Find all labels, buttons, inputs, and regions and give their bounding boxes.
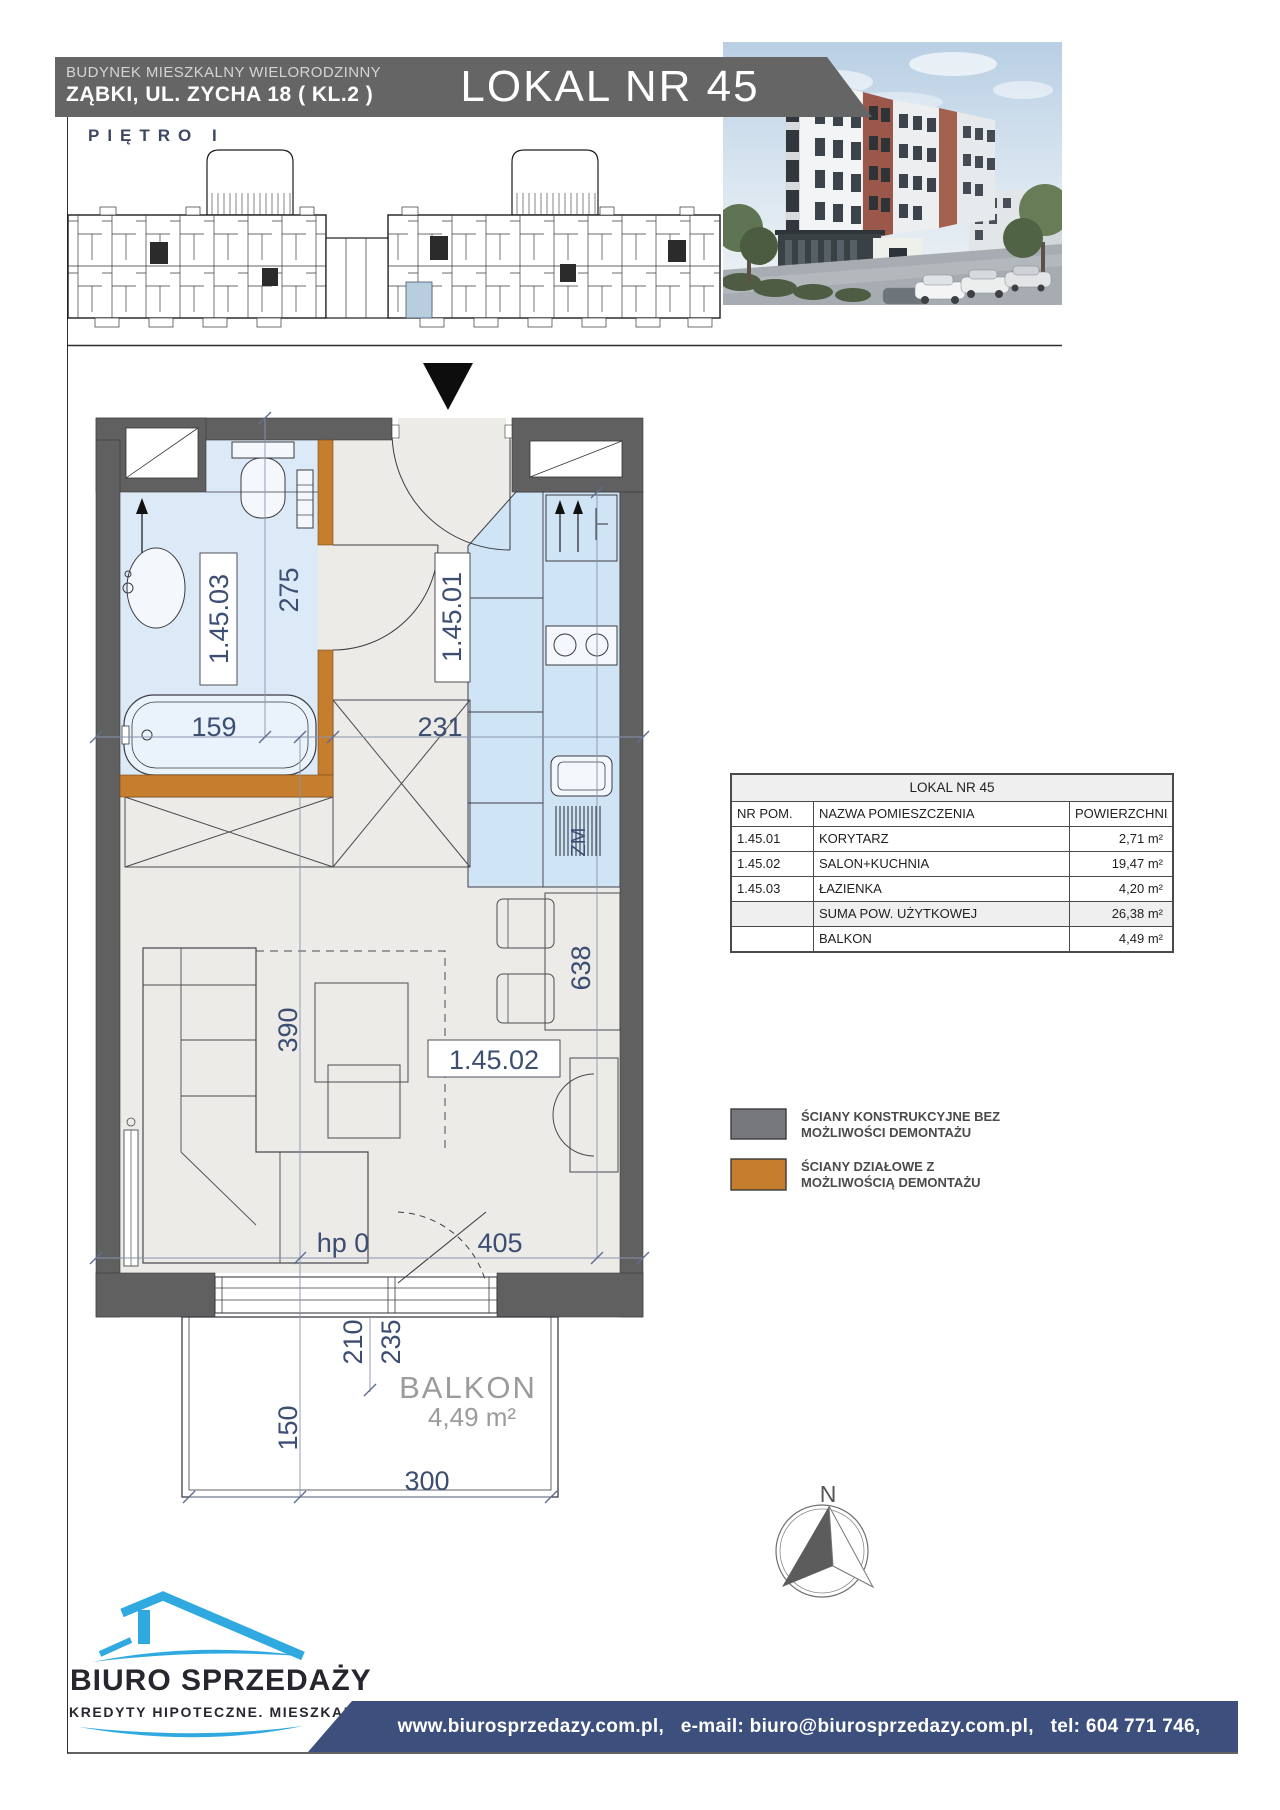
building-connector — [326, 238, 388, 318]
row-name: SUMA POW. UŻYTKOWEJ — [814, 902, 1070, 926]
room-label-bath: 1.45.03 — [204, 574, 234, 664]
col-area: POWIERZCHNIA — [1070, 802, 1168, 826]
partition-wall-swatch — [730, 1158, 787, 1191]
brochure-page: BUDYNEK MIESZKALNY WIELORODZINNY ZĄBKI, … — [0, 0, 1280, 1810]
washbasin — [127, 548, 185, 628]
dim-apartment-depth: 638 — [566, 945, 596, 990]
logo-title: BIURO SPRZEDAŻY — [70, 1664, 372, 1698]
logo-subtitle: KREDYTY HIPOTECZNE. MIESZKANIA — [69, 1704, 373, 1720]
legend-structural-walls: ŚCIANY KONSTRUKCYJNE BEZ MOŻLIWOŚCI DEMO… — [730, 1108, 1000, 1141]
room-label-hall: 1.45.01 — [437, 572, 467, 662]
row-nr: 1.45.01 — [732, 827, 814, 851]
footer-bar: www.biurosprzedazy.com.pl, e-mail: biuro… — [308, 1701, 1238, 1752]
row-area: 2,71 m² — [1070, 827, 1168, 851]
dim-balcony-width: 300 — [404, 1466, 449, 1496]
row-name: KORYTARZ — [814, 827, 1070, 851]
row-nr: 1.45.02 — [732, 852, 814, 876]
structural-wall-swatch — [730, 1108, 787, 1140]
toilet-tank — [232, 442, 294, 458]
dishwasher-label: ZM — [568, 828, 590, 857]
table-row: 1.45.01 KORYTARZ 2,71 m² — [732, 827, 1172, 852]
col-nr: NR POM. — [732, 802, 814, 826]
toilet — [241, 458, 285, 518]
floors — [120, 418, 620, 1273]
dim-sill-height: hp 0 — [317, 1228, 370, 1258]
stove — [546, 626, 617, 665]
stair-bay — [512, 150, 598, 215]
row-nr — [732, 927, 814, 951]
table-row: 1.45.03 ŁAZIENKA 4,20 m² — [732, 877, 1172, 902]
dim-balcony-depth: 150 — [273, 1405, 303, 1450]
legend-partition-walls: ŚCIANY DZIAŁOWE Z MOŻLIWOŚCIĄ DEMONTAŻU — [730, 1158, 981, 1191]
compass-needle-light — [829, 1506, 873, 1587]
table-row: 1.45.02 SALON+KUCHNIA 19,47 m² — [732, 852, 1172, 877]
logo-swoosh-top — [92, 1650, 303, 1662]
balcony-label: BALKON — [399, 1370, 537, 1405]
dim-living-width: 405 — [477, 1228, 522, 1258]
row-area: 19,47 m² — [1070, 852, 1168, 876]
dim-bath-depth: 275 — [274, 567, 304, 612]
footer-contact: www.biurosprzedazy.com.pl, e-mail: biuro… — [308, 1701, 1264, 1752]
legend-partition-text: ŚCIANY DZIAŁOWE Z MOŻLIWOŚCIĄ DEMONTAŻU — [801, 1158, 981, 1191]
highlighted-unit — [406, 282, 432, 318]
entrance-arrow-icon — [423, 363, 473, 410]
towel-radiator — [297, 470, 313, 528]
row-name: SALON+KUCHNIA — [814, 852, 1070, 876]
legend-structural-text: ŚCIANY KONSTRUKCYJNE BEZ MOŻLIWOŚCI DEMO… — [801, 1108, 1000, 1141]
row-area: 26,38 m² — [1070, 902, 1168, 926]
address-label: ZĄBKI, UL. ZYCHA 18 ( KL.2 ) — [66, 83, 373, 107]
dim-hall-width: 231 — [417, 712, 462, 742]
col-name: NAZWA POMIESZCZENIA — [814, 802, 1070, 826]
unit-title: LOKAL NR 45 — [400, 62, 820, 112]
row-nr: 1.45.03 — [732, 877, 814, 901]
area-table-header: NR POM. NAZWA POMIESZCZENIA POWIERZCHNIA — [732, 802, 1172, 827]
dim-door-a: 210 — [338, 1319, 368, 1364]
floor-overview-plan — [68, 150, 720, 327]
row-area: 4,20 m² — [1070, 877, 1168, 901]
area-table: LOKAL NR 45 NR POM. NAZWA POMIESZCZENIA … — [730, 773, 1174, 953]
dim-door-b: 235 — [376, 1319, 406, 1364]
area-table-title: LOKAL NR 45 — [732, 775, 1172, 802]
row-name: BALKON — [814, 927, 1070, 951]
table-row-balcony: BALKON 4,49 m² — [732, 927, 1172, 951]
room-label-living: 1.45.02 — [449, 1045, 539, 1075]
compass: N — [776, 1481, 873, 1597]
stair-bay — [207, 150, 293, 215]
logo-swoosh-bottom — [79, 1726, 303, 1737]
apartment-floor-plan: 1.45.03 1.45.01 1.45.02 275 159 231 390 … — [90, 363, 649, 1503]
row-area: 4,49 m² — [1070, 927, 1168, 951]
balcony-area-label: 4,49 m² — [428, 1402, 516, 1432]
table-row-total: SUMA POW. UŻYTKOWEJ 26,38 m² — [732, 902, 1172, 927]
building-type-label: BUDYNEK MIESZKALNY WIELORODZINNY — [66, 64, 381, 81]
logo-chimney-icon — [138, 1610, 150, 1644]
row-nr — [732, 902, 814, 926]
dim-living-depth: 390 — [273, 1007, 303, 1052]
row-name: ŁAZIENKA — [814, 877, 1070, 901]
north-label: N — [820, 1481, 837, 1507]
dim-bathtub: 159 — [191, 712, 236, 742]
